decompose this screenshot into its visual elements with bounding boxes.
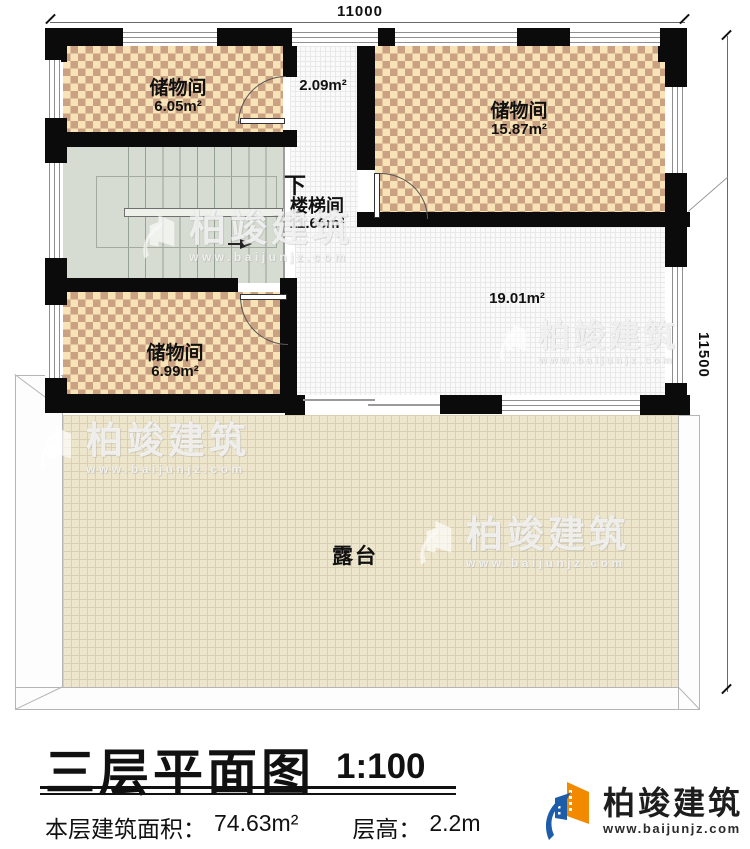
wall-interior (357, 46, 375, 170)
brand-url: www.baijunjz.com (603, 821, 743, 836)
wall-segment (217, 28, 292, 46)
room-area: 6.99m² (146, 364, 203, 381)
floor-height-value: 2.2m (429, 810, 480, 844)
wall-segment (640, 395, 690, 415)
wall-interior (45, 132, 292, 147)
wall-interior (283, 130, 297, 147)
dimension-line-right (727, 36, 728, 692)
dimension-top-label: 11000 (337, 3, 383, 20)
wall-segment (45, 394, 285, 413)
stair-direction-arrow (240, 239, 252, 249)
room-name: 储物间 (146, 343, 203, 364)
title-underline (40, 793, 456, 795)
terrace-label: 露台 (332, 540, 378, 570)
wall-segment (517, 28, 570, 46)
floor-plan-page: 11000 11500 储物间 6.05m² 2.09m² 储物间 15.87m… (0, 0, 750, 849)
brand-text: 柏竣建筑 www.baijunjz.com (603, 787, 743, 836)
room-label-storage-top-left: 储物间 6.05m² (149, 78, 206, 116)
room-area: 19.01m² (489, 291, 545, 308)
window (45, 163, 61, 258)
dimension-line-top (50, 22, 685, 23)
brand-name: 柏竣建筑 (603, 787, 743, 819)
floor-area-label: 本层建筑面积： (45, 810, 206, 844)
dimension-leader (688, 177, 728, 212)
window (292, 28, 378, 46)
wall-segment (378, 28, 395, 46)
wall-interior (45, 278, 238, 292)
window (502, 396, 640, 412)
sliding-door (368, 404, 440, 406)
floor-info: 本层建筑面积：74.63m² 层高：2.2m (45, 810, 481, 844)
parapet-left (15, 375, 63, 710)
brand-logo: 柏竣建筑 www.baijunjz.com (543, 780, 743, 842)
wall-interior (280, 278, 297, 292)
wall-segment (665, 28, 687, 87)
parapet-bottom (15, 687, 700, 710)
window (395, 28, 517, 46)
door-leaf (374, 173, 380, 218)
stair-handrail (124, 208, 283, 217)
drawing-scale: 1:100 (336, 747, 426, 787)
room-label-corridor: 2.09m² (299, 78, 347, 95)
door-leaf (240, 294, 287, 300)
room-label-storage-mid-left: 储物间 6.99m² (146, 343, 203, 381)
door-leaf (240, 118, 285, 124)
window (668, 87, 686, 173)
spacer (306, 810, 344, 844)
room-area: 6.05m² (149, 99, 206, 116)
room-area: 2.09m² (299, 78, 347, 95)
title-underline (40, 786, 456, 789)
room-area: 15.87m² (490, 122, 547, 139)
window (668, 267, 686, 383)
floor-area-value: 74.63m² (214, 810, 298, 844)
room-area: 11.66m² (289, 216, 344, 233)
floor-height-label: 层高： (352, 810, 421, 844)
brand-logo-icon (543, 780, 599, 842)
room-name: 储物间 (490, 101, 547, 122)
stair-direction-arrow-tail (228, 243, 240, 245)
window (45, 305, 61, 378)
window (123, 28, 217, 46)
wall-segment (45, 28, 63, 60)
dimension-right-label: 11500 (695, 332, 712, 378)
window (570, 28, 660, 46)
room-label-stairwell: 楼梯间 11.66m² (289, 196, 344, 233)
room-name: 楼梯间 (289, 196, 344, 216)
wall-segment (440, 395, 502, 414)
room-label-storage-top-right: 储物间 15.87m² (490, 101, 547, 139)
window (45, 60, 61, 118)
hall-floor (295, 227, 665, 395)
parapet-right (678, 415, 700, 710)
sliding-door (303, 399, 375, 401)
room-name: 储物间 (149, 78, 206, 99)
room-label-hall: 19.01m² (489, 291, 545, 308)
